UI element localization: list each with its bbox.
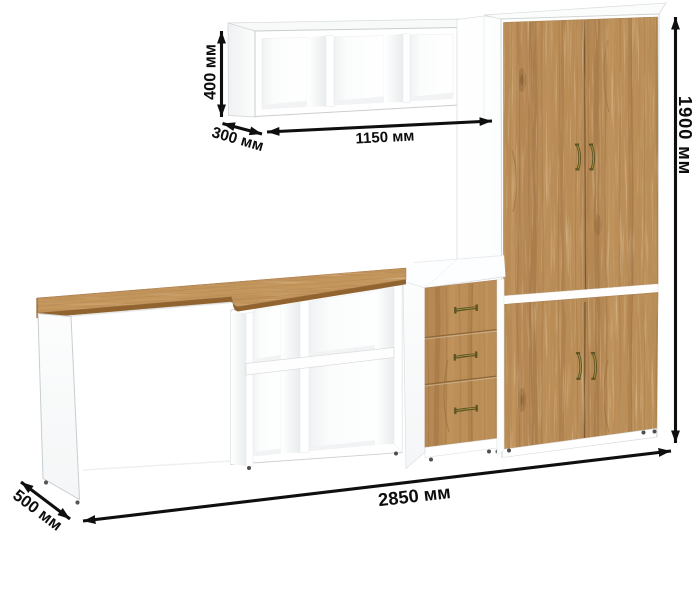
svg-text:1150 мм: 1150 мм xyxy=(355,127,415,147)
svg-text:1900 мм: 1900 мм xyxy=(675,96,696,175)
svg-text:400 мм: 400 мм xyxy=(201,44,219,100)
